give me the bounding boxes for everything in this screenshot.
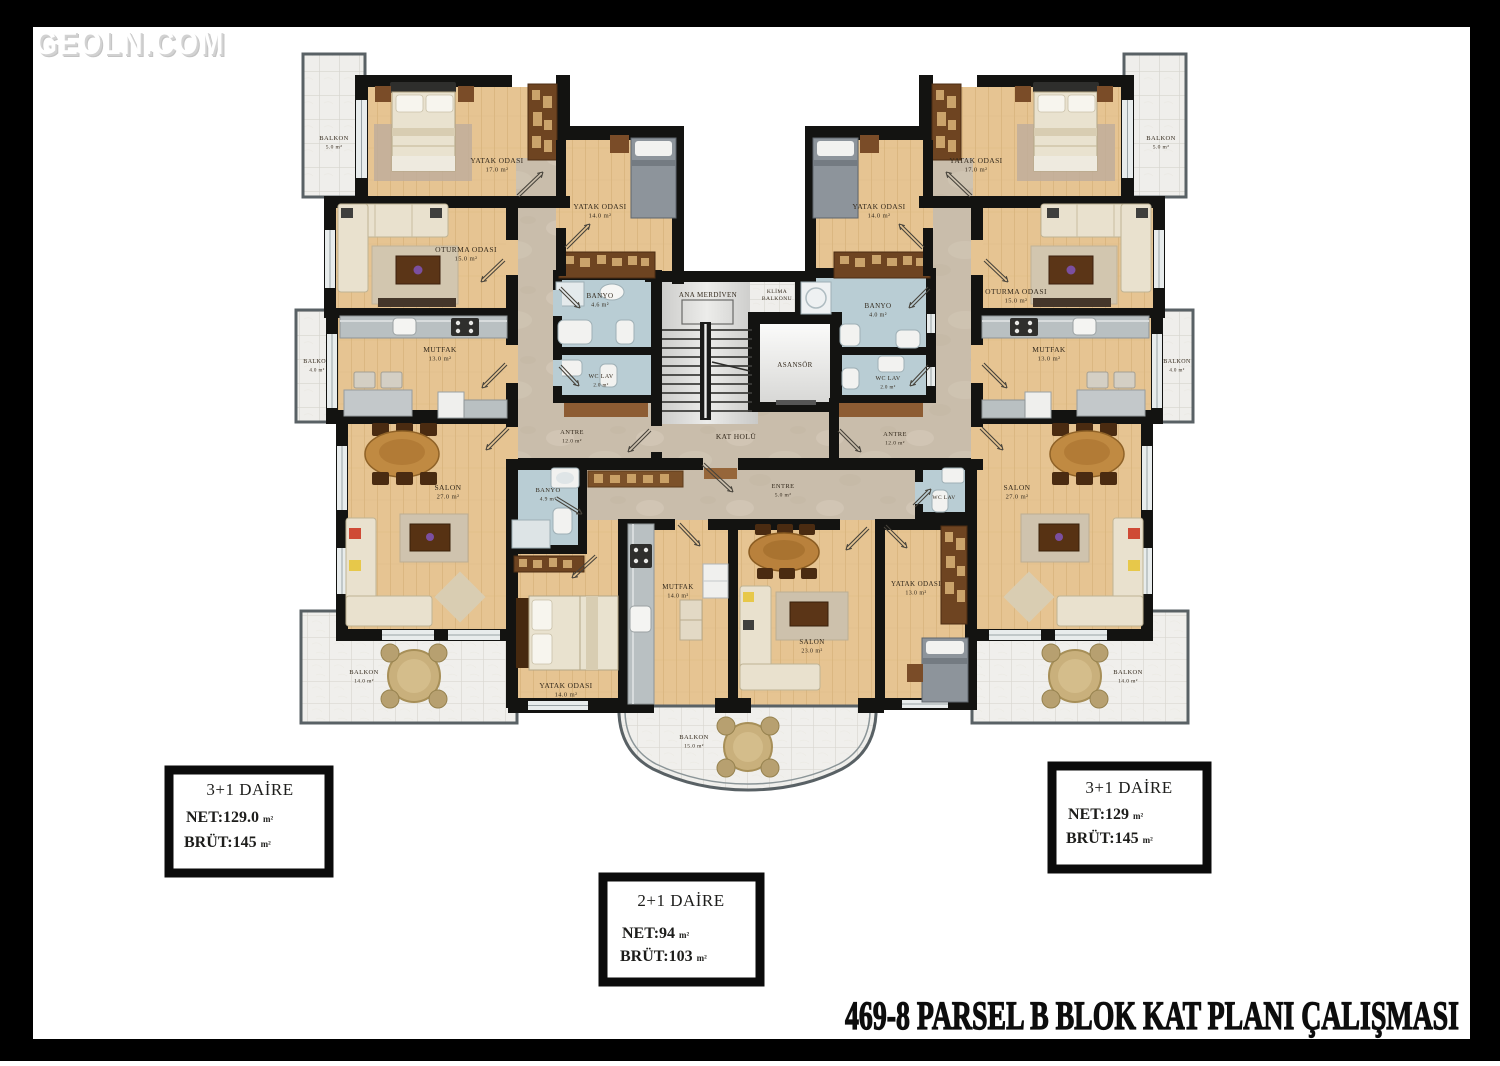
svg-text:MUTFAK: MUTFAK (423, 345, 457, 354)
svg-text:14.0 m²: 14.0 m² (667, 594, 688, 600)
svg-text:4.0 m²: 4.0 m² (1169, 368, 1184, 374)
svg-text:BALKON: BALKON (349, 669, 378, 676)
svg-text:ASANSÖR: ASANSÖR (777, 361, 812, 369)
svg-text:5.0 m²: 5.0 m² (326, 145, 343, 151)
svg-text:2.0 m²: 2.0 m² (880, 385, 895, 391)
svg-text:469-8 PARSEL B BLOK KAT PLANI: 469-8 PARSEL B BLOK KAT PLANI ÇALIŞMASI (845, 993, 1459, 1038)
svg-text:BALKON: BALKON (1163, 359, 1191, 365)
svg-text:12.0 m²: 12.0 m² (562, 439, 582, 445)
svg-text:NET:129 m²: NET:129 m² (1068, 806, 1144, 823)
svg-text:BRÜT:145 m²: BRÜT:145 m² (1066, 829, 1153, 847)
svg-text:YATAK ODASI: YATAK ODASI (891, 580, 941, 588)
svg-text:BANYO: BANYO (865, 302, 892, 310)
svg-text:12.0 m²: 12.0 m² (885, 441, 905, 447)
svg-text:3+1 DAİRE: 3+1 DAİRE (1085, 778, 1172, 797)
svg-text:14.0 m²: 14.0 m² (1118, 679, 1138, 685)
svg-text:3+1 DAİRE: 3+1 DAİRE (206, 780, 293, 799)
svg-text:NET:129.0 m²: NET:129.0 m² (186, 809, 274, 826)
svg-text:YATAK ODASI: YATAK ODASI (573, 202, 626, 211)
svg-text:ANTRE: ANTRE (883, 431, 907, 438)
svg-text:15.0 m²: 15.0 m² (455, 256, 478, 263)
svg-text:BALKON: BALKON (1113, 669, 1142, 676)
svg-text:14.0 m²: 14.0 m² (555, 692, 578, 699)
svg-text:BALKON: BALKON (679, 734, 708, 741)
svg-text:27.0 m²: 27.0 m² (1006, 494, 1029, 501)
svg-text:OTURMA ODASI: OTURMA ODASI (985, 287, 1047, 296)
svg-text:MUTFAK: MUTFAK (662, 583, 693, 591)
svg-text:BANYO: BANYO (535, 487, 560, 494)
svg-text:SALON: SALON (434, 483, 461, 492)
svg-text:BRÜT:145 m²: BRÜT:145 m² (184, 833, 271, 851)
svg-text:WC LAV: WC LAV (588, 374, 613, 380)
svg-text:4.0 m²: 4.0 m² (869, 313, 887, 319)
svg-text:5.0 m²: 5.0 m² (1153, 145, 1170, 151)
svg-text:13.0 m²: 13.0 m² (905, 591, 926, 597)
svg-text:ANA MERDİVEN: ANA MERDİVEN (679, 291, 737, 299)
svg-text:WC LAV: WC LAV (932, 495, 955, 501)
svg-text:15.0 m²: 15.0 m² (1005, 298, 1028, 305)
svg-text:4.6 m²: 4.6 m² (591, 303, 609, 309)
svg-text:ENTRE: ENTRE (772, 483, 795, 490)
svg-text:2.0 m²: 2.0 m² (593, 383, 608, 389)
svg-text:YATAK ODASI: YATAK ODASI (539, 681, 592, 690)
svg-text:KLİMA: KLİMA (767, 288, 787, 295)
svg-text:15.0 m²: 15.0 m² (684, 744, 704, 750)
svg-text:SALON: SALON (799, 638, 824, 646)
svg-text:WC LAV: WC LAV (875, 376, 900, 382)
svg-text:YATAK ODASI: YATAK ODASI (949, 156, 1002, 165)
svg-text:4.9 m²: 4.9 m² (540, 497, 557, 503)
svg-text:GEOLN.COM: GEOLN.COM (35, 24, 225, 61)
svg-text:YATAK ODASI: YATAK ODASI (852, 202, 905, 211)
svg-text:13.0 m²: 13.0 m² (429, 356, 452, 363)
svg-text:ANTRE: ANTRE (560, 429, 584, 436)
svg-text:17.0 m²: 17.0 m² (486, 167, 509, 174)
svg-text:17.0 m²: 17.0 m² (965, 167, 988, 174)
svg-text:KAT HOLÜ: KAT HOLÜ (716, 432, 757, 441)
svg-text:YATAK ODASI: YATAK ODASI (470, 156, 523, 165)
svg-text:14.0 m²: 14.0 m² (589, 213, 612, 220)
svg-text:4.0 m²: 4.0 m² (309, 368, 324, 374)
svg-text:5.0 m²: 5.0 m² (775, 493, 792, 499)
svg-text:BALKON: BALKON (319, 135, 348, 142)
svg-text:BALKON: BALKON (1146, 135, 1175, 142)
svg-text:14.0 m²: 14.0 m² (868, 213, 891, 220)
svg-text:27.0 m²: 27.0 m² (437, 494, 460, 501)
svg-text:14.0 m²: 14.0 m² (354, 679, 374, 685)
svg-text:OTURMA ODASI: OTURMA ODASI (435, 245, 497, 254)
svg-text:BANYO: BANYO (587, 292, 614, 300)
svg-text:13.0 m²: 13.0 m² (1038, 356, 1061, 363)
svg-text:SALON: SALON (1003, 483, 1030, 492)
svg-text:23.0 m²: 23.0 m² (801, 649, 822, 655)
svg-text:BRÜT:103 m²: BRÜT:103 m² (620, 947, 707, 965)
svg-text:BALKONU: BALKONU (762, 296, 792, 302)
svg-text:2+1 DAİRE: 2+1 DAİRE (637, 891, 724, 910)
svg-text:MUTFAK: MUTFAK (1032, 345, 1066, 354)
